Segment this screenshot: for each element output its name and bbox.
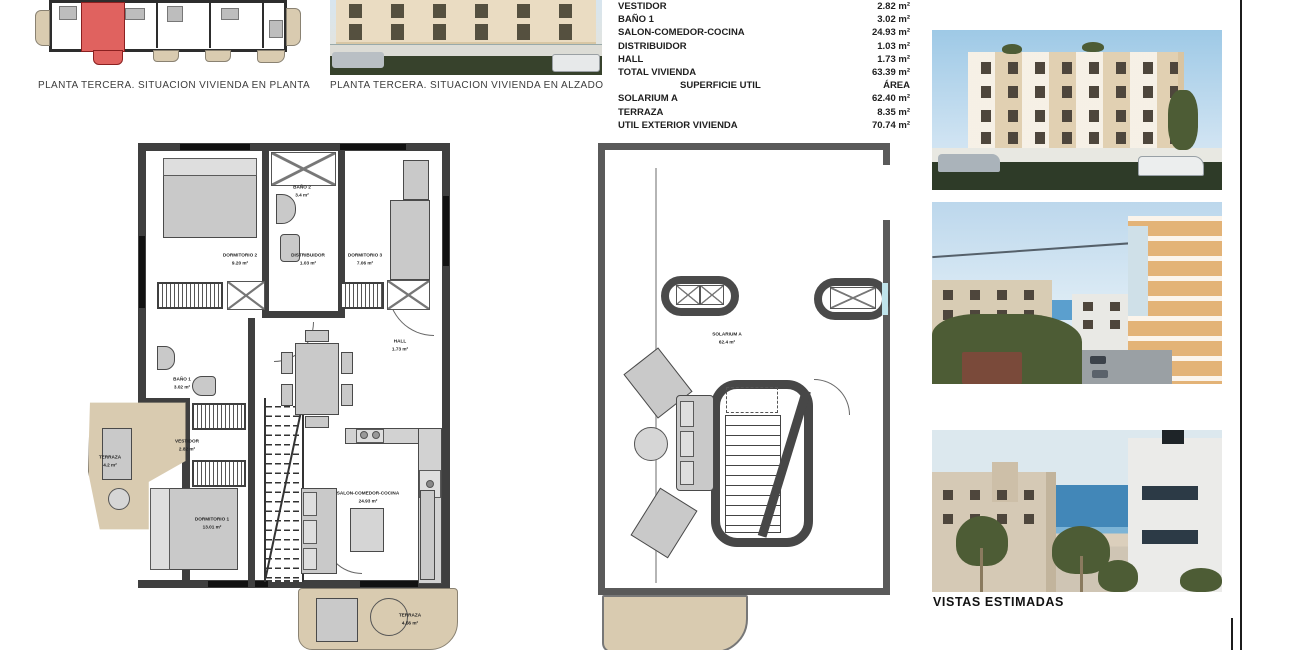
bed-pillows [163, 158, 257, 176]
bed-pillows [150, 488, 170, 570]
window [139, 236, 145, 308]
window-band [1142, 486, 1198, 500]
roof-plant [1002, 44, 1022, 54]
room-label-dormitorio-3: DORMITORIO 37.06 m² [348, 252, 382, 268]
keyplan-caption: PLANTA TERCERA. SITUACION VIVIENDA EN PL… [38, 80, 310, 91]
roof [962, 352, 1022, 384]
table-row: TOTAL VIVIENDA63.39 m² [618, 66, 910, 79]
table-row: SOLARIUM A62.40 m² [618, 92, 910, 105]
room-label-dormitorio-2: DORMITORIO 29.20 m² [223, 252, 257, 268]
car [1092, 370, 1108, 378]
dining-table [295, 343, 339, 415]
chair [341, 384, 353, 406]
page-border-corner [1231, 618, 1233, 650]
chair [281, 384, 293, 406]
window [208, 581, 268, 587]
apartment-floor-plan: DORMITORIO 29.20 m² BAÑO 23.4 m² DORMITO… [88, 140, 464, 650]
room-label-vestidor: VESTIDOR2.82 m² [175, 438, 199, 454]
table-row: UTIL EXTERIOR VIVIENDA70.74 m² [618, 119, 910, 132]
room-label-terraza-lateral: TERRAZA4.2 m² [99, 454, 121, 470]
table-section-header: SUPERFICIE UTILÁREA [618, 79, 910, 92]
window [340, 144, 406, 150]
car [552, 54, 600, 72]
elevation-caption: PLANTA TERCERA. SITUACION VIVIENDA EN AL… [330, 80, 603, 91]
solarium-terrace [602, 595, 748, 650]
table-row: TERRAZA8.35 m² [618, 106, 910, 119]
window [360, 581, 418, 587]
car [332, 52, 384, 68]
shrub [1098, 560, 1138, 592]
highlighted-unit-terrace [93, 50, 123, 65]
room-label-solarium: SOLARIUM A62.4 m² [712, 331, 741, 347]
wardrobe [192, 460, 246, 487]
photo-beach-view [932, 430, 1222, 592]
vistas-estimadas-label: VISTAS ESTIMADAS [933, 595, 1064, 609]
room-label-salon: SALON-COMEDOR-COCINA24.93 m² [337, 490, 399, 506]
car [1090, 356, 1106, 364]
photo-building-front [932, 30, 1222, 190]
window-band [1142, 530, 1198, 544]
key-plan [35, 0, 301, 70]
terrace-chair [316, 598, 358, 642]
room-label-terraza-inferior: TERRAZA4.56 m² [399, 612, 421, 628]
wardrobe [157, 282, 223, 309]
highlighted-unit [81, 2, 125, 52]
roof-plant [1082, 42, 1104, 52]
tv-bench [420, 490, 435, 580]
toilet [192, 376, 216, 396]
stair-landing [726, 387, 778, 413]
sink [157, 346, 175, 370]
closet [227, 281, 265, 310]
bed-single [390, 200, 430, 280]
terrace-table [108, 488, 130, 510]
table-row: BAÑO 13.02 m² [618, 13, 910, 26]
solarium-floor-plan: SOLARIUM A62.4 m² [598, 143, 890, 650]
window [180, 144, 250, 150]
page-border-line [1240, 0, 1242, 650]
room-label-hall: HALL1.73 m² [392, 338, 408, 354]
round-table [634, 427, 668, 461]
chair [341, 352, 353, 374]
coffee-table [350, 508, 384, 552]
table-row: SALON-COMEDOR-COCINA24.93 m² [618, 26, 910, 39]
wardrobe [192, 403, 246, 430]
chair [305, 416, 329, 428]
table-row: DISTRIBUIDOR1.03 m² [618, 40, 910, 53]
sun-lounger [631, 488, 698, 559]
photo-street-view [932, 202, 1222, 384]
wardrobe [340, 282, 384, 309]
chimney [1162, 430, 1184, 444]
palm-tree [1168, 90, 1198, 150]
shower [271, 152, 336, 186]
closet [387, 280, 430, 310]
room-label-bano-1: BAÑO 13.02 m² [173, 376, 191, 392]
car [1138, 156, 1204, 176]
table-row: VESTIDOR2.82 m² [618, 0, 910, 13]
shrub [1180, 568, 1222, 592]
door-arc [814, 379, 850, 415]
car [938, 154, 1000, 172]
window [443, 196, 449, 266]
chair [281, 352, 293, 374]
desk [403, 160, 429, 200]
area-table: VESTIDOR2.82 m² BAÑO 13.02 m² SALON-COME… [618, 0, 910, 132]
room-label-distribuidor: DISTRIBUIDOR1.03 m² [291, 252, 325, 268]
glass-corner [1128, 226, 1148, 316]
room-label-bano-2: BAÑO 23.4 m² [293, 184, 311, 200]
table-row: HALL1.73 m² [618, 53, 910, 66]
glass-door [882, 283, 888, 315]
brochure-page: PLANTA TERCERA. SITUACION VIVIENDA EN PL… [0, 0, 1291, 650]
chair [305, 330, 329, 342]
elevation-render [330, 0, 602, 75]
room-label-dormitorio-1: DORMITORIO 113.01 m² [195, 516, 229, 532]
